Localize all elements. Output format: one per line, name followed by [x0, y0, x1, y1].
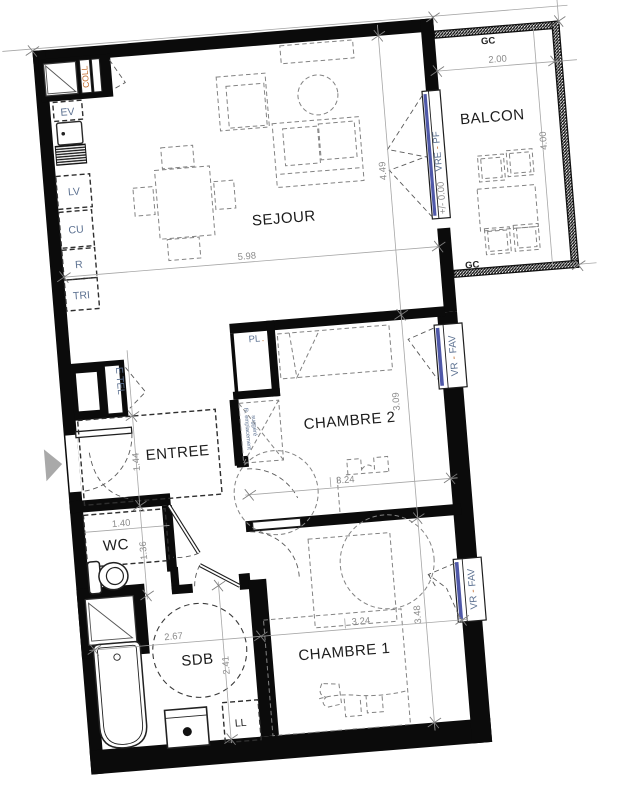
svg-text:3.24: 3.24	[336, 474, 355, 486]
svg-text:CHAMBRE 2: CHAMBRE 2	[303, 409, 396, 433]
svg-text:1.44: 1.44	[130, 452, 142, 471]
svg-text:3.24: 3.24	[351, 615, 370, 627]
svg-text:TRI: TRI	[73, 289, 91, 302]
svg-text:GC: GC	[465, 259, 480, 271]
svg-text:1.40: 1.40	[112, 518, 131, 530]
svg-text:.: .	[261, 333, 265, 344]
svg-text:SDB: SDB	[181, 650, 215, 670]
svg-text:3.48: 3.48	[412, 605, 424, 624]
svg-text:5.98: 5.98	[237, 250, 256, 262]
svg-text:2.00: 2.00	[488, 53, 507, 65]
svg-text:R. emplacement: R. emplacement	[242, 408, 251, 451]
svg-text:4.49: 4.49	[377, 161, 389, 180]
svg-text:LL: LL	[234, 717, 247, 730]
svg-text:LV: LV	[68, 186, 81, 199]
svg-text:CU: CU	[68, 223, 84, 236]
svg-text:WC: WC	[102, 536, 129, 555]
svg-text:EV: EV	[60, 106, 75, 119]
svg-text:ENTREE: ENTREE	[145, 442, 210, 464]
svg-text:2.67: 2.67	[164, 631, 183, 643]
svg-text:COLL: COLL	[79, 65, 91, 88]
svg-text:CHAMBRE 1: CHAMBRE 1	[298, 640, 391, 664]
svg-text:E TEL: E TEL	[113, 367, 126, 396]
svg-text:PL: PL	[248, 333, 260, 345]
svg-text:GC: GC	[481, 35, 496, 47]
svg-text:BALCON: BALCON	[459, 106, 525, 128]
svg-text:3.09: 3.09	[390, 392, 402, 411]
svg-text:1.36: 1.36	[138, 541, 150, 560]
svg-text:2.41: 2.41	[220, 656, 232, 675]
svg-text:4.00: 4.00	[538, 131, 550, 150]
svg-text:R: R	[75, 259, 84, 272]
svg-text:SEJOUR: SEJOUR	[251, 208, 316, 230]
